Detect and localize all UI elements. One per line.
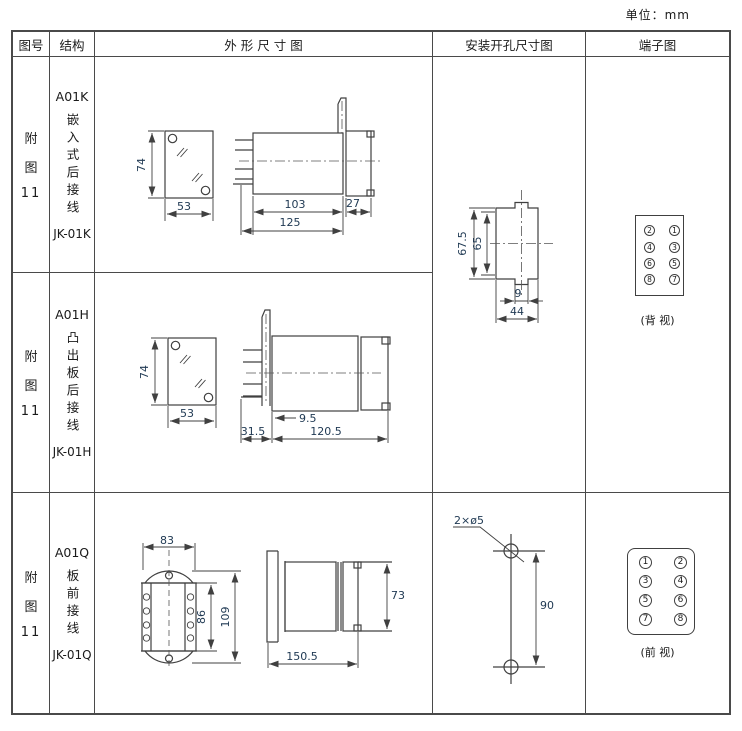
side-view-jk01k: 103 27 125 [233, 98, 383, 235]
header-structure: 结构 [50, 32, 95, 57]
terminal-pin: 4 [644, 242, 655, 253]
dim-front-height: 74 [138, 365, 151, 379]
model-label: A01H [55, 307, 89, 322]
structure-jk01h: A01H 凸出板后接线 JK-01H [50, 273, 95, 493]
dim-front-depth: 31.5 [241, 425, 266, 438]
figure-number: 11 [21, 625, 42, 640]
dim-front-depth: 27 [346, 197, 360, 210]
dim-front-height: 74 [135, 158, 148, 172]
structure-jk01k: A01K 嵌入式后接线 JK-01K [50, 57, 95, 273]
header-mounting: 安装开孔尺寸图 [433, 32, 586, 57]
figure-number: 11 [21, 404, 42, 419]
terminal-view-label: (前 视) [586, 644, 729, 660]
terminal-pin: 3 [639, 575, 652, 588]
datasheet-page: { "unit_label": "单位：mm", "colors": { "li… [0, 0, 742, 731]
terminal-pin: 7 [669, 274, 680, 285]
outline-drawing-jk01k: 74 53 103 27 125 [95, 57, 432, 272]
terminal-cell-jk01: 2 1 4 3 6 5 8 7 (背 视) [586, 57, 729, 493]
front-view-jk01k: 74 53 [135, 131, 213, 221]
figure-char: 图 [24, 596, 37, 615]
dim-mount-slot: 9 [515, 287, 522, 300]
figure-char: 附 [24, 128, 37, 147]
dim-total-depth: 150.5 [286, 650, 318, 663]
dim-body-depth: 120.5 [310, 425, 342, 438]
dim-mount-outer-height: 67.5 [456, 231, 469, 256]
figure-char: 附 [24, 567, 37, 586]
dim-hole-spacing: 90 [540, 599, 554, 612]
outline-drawing-jk01q: 83 86 109 [95, 493, 432, 712]
terminal-box: 2 1 4 3 6 5 8 7 [635, 215, 684, 296]
terminal-pin: 6 [644, 258, 655, 269]
header-figure-no: 图号 [13, 32, 50, 57]
header-terminal: 端子图 [586, 32, 729, 57]
side-view-jk01h: 9.5 31.5 120.5 [241, 310, 390, 443]
model-label: A01Q [55, 545, 89, 560]
figure-no-jk01k: 附 图 11 [13, 57, 50, 273]
unit-label: 单位：mm [626, 6, 690, 23]
spec-table: 图号 结构 外 形 尺 寸 图 安装开孔尺寸图 端子图 附 图 11 A01K … [11, 30, 731, 715]
model-code: JK-01H [53, 445, 92, 459]
model-code: JK-01Q [52, 648, 91, 662]
front-view-jk01q: 83 86 109 [141, 534, 241, 670]
figure-no-jk01h: 附 图 11 [13, 273, 50, 493]
front-view-jk01h: 74 53 [138, 338, 216, 428]
outline-cell-jk01h: 74 53 9.5 31.5 120.5 [95, 273, 433, 493]
dim-front-width: 83 [160, 534, 174, 547]
structure-desc: 嵌入式后接线 [63, 113, 82, 218]
dim-inner-height: 86 [195, 610, 208, 624]
terminal-pin: 3 [669, 242, 680, 253]
terminal-diagram-jk01q: 1 2 3 4 5 6 7 8 (前 视) [586, 493, 729, 713]
dim-front-width: 53 [177, 200, 191, 213]
terminal-diagram-jk01k: 2 1 4 3 6 5 8 7 (背 视) [586, 57, 729, 492]
structure-desc: 板前接线 [63, 569, 82, 639]
model-label: A01K [56, 89, 89, 104]
dim-front-width: 53 [180, 407, 194, 420]
figure-char: 附 [24, 346, 37, 365]
side-view-jk01q: 73 150.5 [267, 551, 405, 668]
figure-number: 11 [21, 186, 42, 201]
terminal-cell-jk01q: 1 2 3 4 5 6 7 8 (前 视) [586, 493, 729, 713]
model-code: JK-01K [53, 227, 91, 241]
dim-total-depth: 125 [280, 216, 301, 229]
terminal-pin: 8 [644, 274, 655, 285]
mounting-cell-jk01: 67.5 65 9 44 [433, 57, 586, 493]
mounting-drawing-jk01: 67.5 65 9 44 [433, 57, 585, 492]
mounting-drawing-jk01q: 2×ø5 90 [433, 493, 585, 712]
terminal-pin: 5 [639, 594, 652, 607]
structure-jk01q: A01Q 板前接线 JK-01Q [50, 493, 95, 713]
dim-body-depth: 103 [285, 198, 306, 211]
figure-no-jk01q: 附 图 11 [13, 493, 50, 713]
header-outline: 外 形 尺 寸 图 [95, 32, 433, 57]
outline-drawing-jk01h: 74 53 9.5 31.5 120.5 [95, 273, 432, 492]
dim-mount-inner-height: 65 [471, 237, 484, 251]
terminal-pin: 7 [639, 613, 652, 626]
terminal-pin: 1 [639, 556, 652, 569]
terminal-pin: 8 [674, 613, 687, 626]
dim-outer-height: 109 [219, 607, 232, 628]
terminal-pin: 2 [644, 225, 655, 236]
figure-char: 图 [24, 157, 37, 176]
terminal-pin: 4 [674, 575, 687, 588]
mounting-cell-jk01q: 2×ø5 90 [433, 493, 586, 713]
terminal-pin: 5 [669, 258, 680, 269]
dim-side-height: 73 [391, 589, 405, 602]
terminal-pin: 2 [674, 556, 687, 569]
terminal-pin: 6 [674, 594, 687, 607]
terminal-view-label: (背 视) [586, 312, 729, 328]
outline-cell-jk01q: 83 86 109 [95, 493, 433, 713]
dim-panel-offset: 9.5 [299, 412, 317, 425]
dim-mount-width: 44 [510, 305, 524, 318]
figure-char: 图 [24, 375, 37, 394]
structure-desc: 凸出板后接线 [63, 331, 82, 436]
terminal-box: 1 2 3 4 5 6 7 8 [627, 548, 695, 635]
dim-hole-callout: 2×ø5 [454, 514, 484, 527]
terminal-pin: 1 [669, 225, 680, 236]
outline-cell-jk01k: 74 53 103 27 125 [95, 57, 433, 273]
